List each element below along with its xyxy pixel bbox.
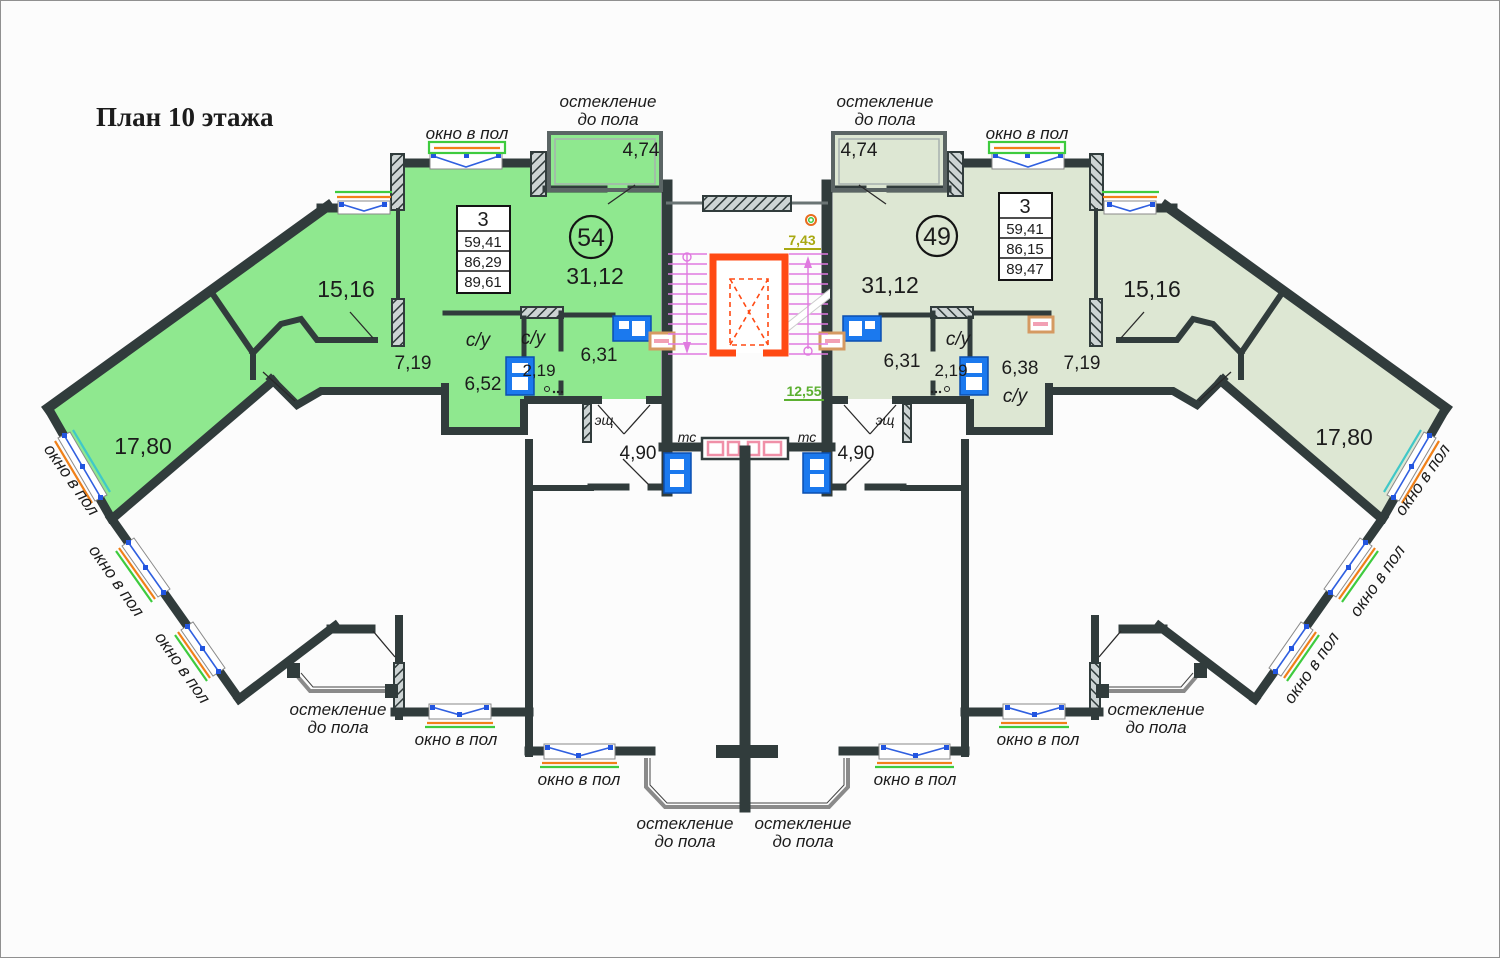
room-corridor-left: 6,31 <box>581 345 618 366</box>
annotation-glazing: до пола <box>1125 718 1186 737</box>
room-hall-left: 7,19 <box>395 353 432 374</box>
room-bedroom2-right: 17,80 <box>1315 424 1373 450</box>
radiator-icon <box>1029 317 1053 332</box>
vent-label-left: тс <box>678 429 697 445</box>
annotation-window: окно в пол <box>997 730 1080 749</box>
room-bathroom-right: 6,38 <box>1002 358 1039 379</box>
annotation-glazing: до пола <box>654 832 715 851</box>
apartment-54-number: 54 <box>577 224 605 252</box>
apt49-area-total: 86,15 <box>1006 241 1044 258</box>
lobby-area-right: 4,90 <box>838 443 875 464</box>
stair-core <box>666 196 830 807</box>
room-living-right: 31,12 <box>861 272 919 298</box>
dim-stair-width: 7,43 <box>788 232 815 248</box>
apt49-rooms-count: 3 <box>1019 196 1030 218</box>
dim-stair-depth: 12,55 <box>786 383 821 399</box>
apt54-area-overall: 89,61 <box>464 274 502 291</box>
annotation-window: окно в пол <box>874 770 957 789</box>
apartment-49-number: 49 <box>923 223 951 251</box>
bath-label2-right: с/у <box>1003 386 1029 407</box>
page-title: План 10 этажа <box>96 102 274 132</box>
room-hall-right: 7,19 <box>1064 353 1101 374</box>
annotation-window: окно в пол <box>986 124 1069 143</box>
annotation-glazing: остекление <box>560 92 657 111</box>
apt49-area-living: 59,41 <box>1006 221 1044 238</box>
floor-plan-drawing: 3 59,41 86,29 89,61 3 59,41 86,15 89,47 … <box>1 1 1500 958</box>
apt54-area-total: 86,29 <box>464 254 502 271</box>
room-balcony-right: 4,74 <box>841 140 878 161</box>
apt54-area-living: 59,41 <box>464 234 502 251</box>
bath-label-left: с/у <box>466 330 492 351</box>
apartment-49-table: 3 59,41 86,15 89,47 <box>999 193 1052 280</box>
room-corridor-right: 6,31 <box>884 351 921 372</box>
room-balcony-left: 4,74 <box>623 140 660 161</box>
annotation-glazing: остекление <box>837 92 934 111</box>
annotation-window: окно в пол <box>426 124 509 143</box>
room-wc-left: 2,19 <box>522 361 555 380</box>
apartment-54-table: 3 59,41 86,29 89,61 <box>457 206 510 293</box>
annotation-glazing: остекление <box>1108 700 1205 719</box>
room-wc-right: 2,19 <box>934 361 967 380</box>
panel-label-left: эщ <box>595 412 614 428</box>
annotation-glazing: до пола <box>307 718 368 737</box>
room-bedroom1-right: 15,16 <box>1123 276 1181 302</box>
annotation-glazing: до пола <box>854 110 915 129</box>
annotation-glazing: остекление <box>290 700 387 719</box>
annotation-glazing: до пола <box>577 110 638 129</box>
elevator-icon <box>713 257 785 353</box>
apt54-rooms-count: 3 <box>477 209 488 231</box>
bath-label2-left: с/у <box>521 328 547 349</box>
apt49-area-overall: 89,47 <box>1006 261 1044 278</box>
room-living-left: 31,12 <box>566 263 624 289</box>
annotation-glazing: остекление <box>637 814 734 833</box>
room-bathroom-left: 6,52 <box>465 374 502 395</box>
annotation-glazing: остекление <box>755 814 852 833</box>
bath-label-right: с/у <box>946 329 972 350</box>
vent-label-right: тс <box>798 429 817 445</box>
annotation-window: окно в пол <box>415 730 498 749</box>
panel-label-right: эщ <box>876 412 895 428</box>
room-bedroom1-left: 15,16 <box>317 276 375 302</box>
lobby-area-left: 4,90 <box>620 443 657 464</box>
annotation-window: окно в пол <box>538 770 621 789</box>
room-bedroom2-left: 17,80 <box>114 433 172 459</box>
floor-plan-canvas: 3 59,41 86,29 89,61 3 59,41 86,15 89,47 … <box>0 0 1500 958</box>
annotation-glazing: до пола <box>772 832 833 851</box>
